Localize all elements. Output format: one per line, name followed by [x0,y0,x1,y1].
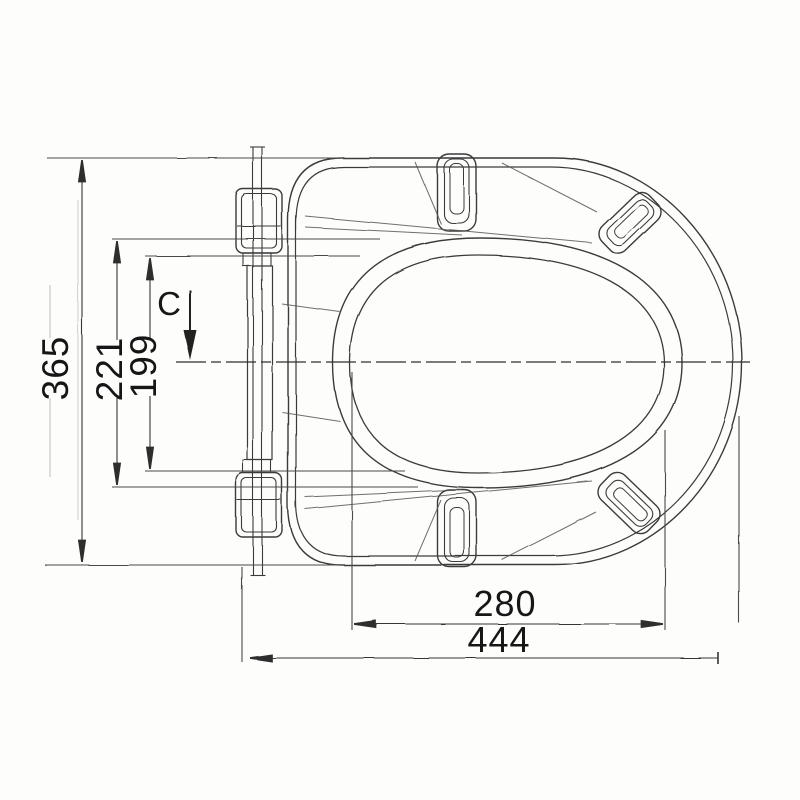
drawing-page: 365 221 199 280 444 C [0,0,800,800]
dim-text-444: 444 [467,619,530,660]
down-arrow-icon [184,330,197,360]
hinge-boss-top [236,189,282,266]
seat-ring-contour [333,238,682,488]
hinge-pin-lines [250,147,265,575]
seat-geometry [236,147,742,575]
centerline-pointer [184,290,197,360]
centerline-mark-label: C [157,285,181,322]
dim-text-365: 365 [35,336,76,401]
bumper-top-right [594,188,665,258]
dim-text-199: 199 [123,334,164,399]
bumper-top-center [437,154,476,231]
seat-opening [350,255,664,473]
bumper-bottom-right [593,468,664,538]
hinge-bar [248,266,273,460]
technical-drawing-canvas: 365 221 199 280 444 C [0,0,800,800]
dim-text-280: 280 [473,583,536,624]
